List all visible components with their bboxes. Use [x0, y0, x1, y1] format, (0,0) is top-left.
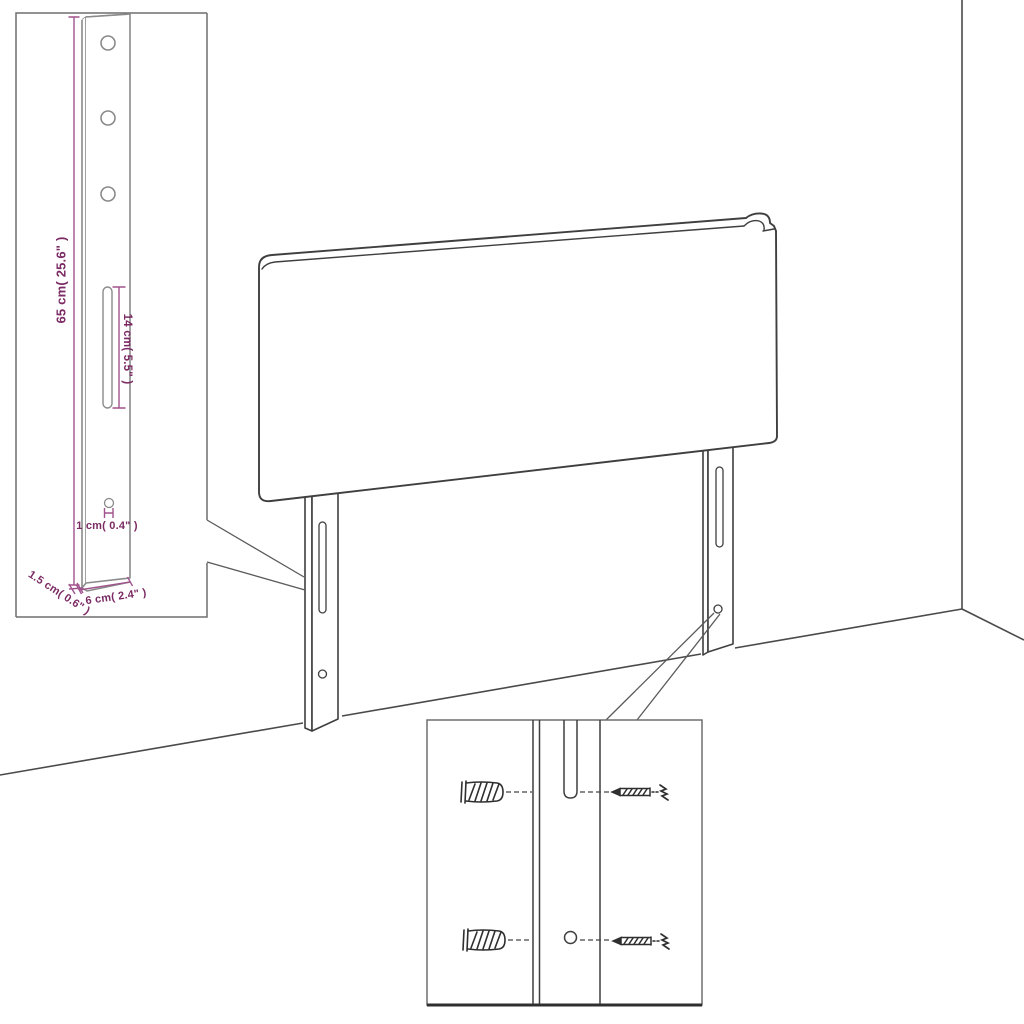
dim-label-hole: 1 cm( 0.4" )	[76, 520, 137, 532]
assembly-diagram: 65 cm( 25.6" ) 14 cm( 5.5" ) 1 cm( 0.4" …	[0, 0, 1024, 1024]
floor-line-right	[962, 609, 1024, 640]
right-mounting-leg	[703, 447, 733, 655]
left-leg-hole	[319, 670, 327, 678]
leader-line-bottom	[207, 562, 305, 590]
leader-line-right	[637, 614, 720, 720]
leg-detail-drawing	[82, 14, 130, 591]
dim-line-height	[69, 17, 80, 585]
right-leg-slot	[716, 467, 723, 547]
headboard-panel	[259, 213, 777, 501]
mounting-detail-inset	[427, 720, 702, 1005]
left-mounting-leg	[305, 493, 338, 731]
dim-label-height: 65 cm( 25.6" )	[54, 236, 69, 323]
right-leg-hole	[714, 605, 722, 613]
left-leg-slot	[319, 522, 326, 613]
diagram-canvas	[0, 0, 1024, 1024]
left-leg-side-face	[305, 496, 312, 731]
leg-detail-side-face	[82, 17, 86, 588]
leader-line-top	[207, 520, 304, 577]
dim-label-slot: 14 cm( 5.5" )	[121, 314, 133, 385]
leader-lines-leg-detail	[207, 520, 305, 590]
leader-line-left	[606, 613, 714, 720]
leg-detail-front-face	[86, 14, 130, 583]
